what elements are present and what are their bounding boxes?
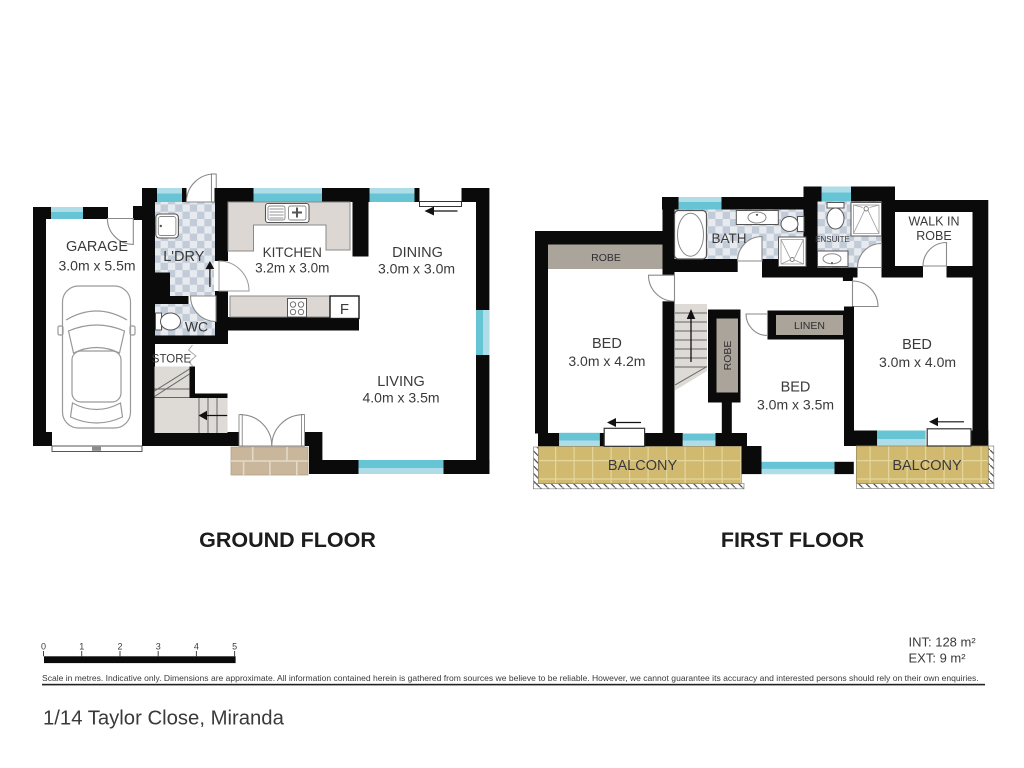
svg-text:LINEN: LINEN: [794, 320, 825, 332]
svg-text:KITCHEN: KITCHEN: [263, 245, 322, 260]
svg-text:ROBE: ROBE: [916, 229, 951, 243]
svg-text:GARAGE: GARAGE: [66, 239, 128, 255]
svg-text:EXT: 9 m²: EXT: 9 m²: [909, 651, 967, 666]
svg-text:ENSUITE: ENSUITE: [815, 235, 850, 244]
svg-text:3.0m x 3.5m: 3.0m x 3.5m: [757, 397, 834, 413]
svg-text:BED: BED: [592, 336, 622, 352]
svg-text:3.0m x 4.0m: 3.0m x 4.0m: [879, 354, 956, 370]
svg-text:1/14 Taylor Close, Miranda: 1/14 Taylor Close, Miranda: [43, 708, 285, 730]
svg-text:0: 0: [41, 642, 46, 652]
svg-text:STORE: STORE: [152, 354, 192, 366]
svg-text:2: 2: [117, 642, 122, 652]
svg-text:LIVING: LIVING: [377, 374, 425, 390]
svg-text:4.0m x 3.5m: 4.0m x 3.5m: [362, 390, 439, 406]
svg-text:3: 3: [156, 642, 161, 652]
svg-text:BED: BED: [902, 337, 932, 353]
svg-text:L'DRY: L'DRY: [163, 249, 205, 265]
svg-text:WC: WC: [185, 319, 208, 335]
svg-text:BATH: BATH: [711, 231, 746, 246]
svg-text:BALCONY: BALCONY: [892, 458, 962, 474]
svg-text:INT: 128 m²: INT: 128 m²: [909, 635, 977, 650]
svg-text:3.0m x 3.0m: 3.0m x 3.0m: [378, 260, 455, 276]
svg-text:BED: BED: [781, 380, 811, 396]
svg-text:3.0m x 4.2m: 3.0m x 4.2m: [568, 353, 645, 369]
svg-text:5: 5: [232, 642, 237, 652]
svg-text:3.0m x 5.5m: 3.0m x 5.5m: [58, 258, 135, 274]
svg-text:1: 1: [79, 642, 84, 652]
svg-text:3.2m x 3.0m: 3.2m x 3.0m: [255, 260, 329, 275]
svg-text:FIRST FLOOR: FIRST FLOOR: [721, 528, 865, 552]
svg-text:ROBE: ROBE: [722, 341, 734, 371]
svg-text:F: F: [340, 301, 349, 318]
svg-text:GROUND FLOOR: GROUND FLOOR: [199, 528, 376, 552]
svg-text:4: 4: [194, 642, 199, 652]
svg-text:WALK IN: WALK IN: [909, 215, 960, 229]
svg-text:ROBE: ROBE: [591, 252, 621, 264]
svg-text:DINING: DINING: [392, 245, 443, 261]
svg-text:Scale in metres. Indicative on: Scale in metres. Indicative only. Dimens…: [42, 673, 979, 683]
svg-text:BALCONY: BALCONY: [608, 458, 678, 474]
